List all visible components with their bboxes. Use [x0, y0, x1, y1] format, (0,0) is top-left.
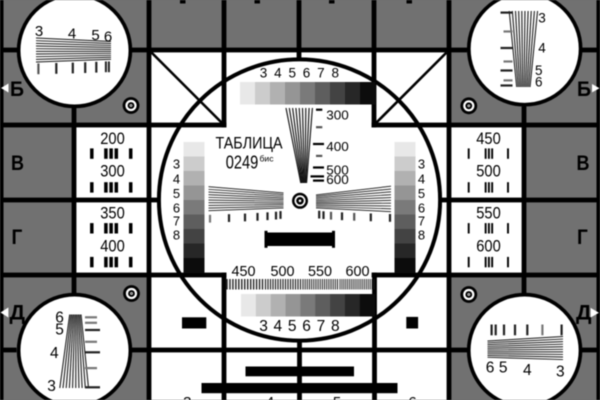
svg-text:ТАБЛИЦА: ТАБЛИЦА — [216, 134, 284, 153]
svg-text:4: 4 — [274, 66, 282, 81]
svg-text:5: 5 — [55, 321, 64, 338]
svg-text:5: 5 — [418, 186, 425, 201]
svg-text:Б: Б — [10, 77, 24, 101]
svg-text:7: 7 — [317, 66, 325, 81]
svg-text:3: 3 — [173, 157, 180, 172]
svg-text:450: 450 — [232, 264, 256, 280]
svg-text:550: 550 — [476, 204, 501, 223]
svg-text:500: 500 — [271, 264, 295, 280]
svg-text:3: 3 — [418, 157, 425, 172]
svg-text:3: 3 — [259, 318, 268, 335]
svg-text:3: 3 — [35, 23, 43, 40]
svg-text:4: 4 — [173, 172, 180, 187]
svg-text:5: 5 — [288, 318, 297, 335]
svg-text:бис: бис — [260, 153, 275, 163]
svg-text:Б: Б — [577, 77, 591, 101]
svg-text:4: 4 — [266, 394, 274, 400]
svg-text:В: В — [11, 151, 24, 175]
svg-text:300: 300 — [326, 108, 349, 122]
svg-text:6: 6 — [486, 360, 495, 377]
svg-text:В: В — [577, 151, 590, 175]
svg-text:6: 6 — [535, 74, 543, 89]
svg-text:300: 300 — [100, 162, 125, 181]
svg-text:Г: Г — [12, 225, 23, 249]
svg-text:5: 5 — [91, 27, 99, 44]
svg-text:6: 6 — [302, 318, 311, 335]
svg-text:8: 8 — [331, 318, 340, 335]
svg-text:3: 3 — [538, 11, 546, 26]
svg-text:6: 6 — [104, 28, 112, 45]
svg-text:550: 550 — [308, 264, 332, 280]
svg-text:8: 8 — [418, 227, 425, 242]
svg-text:4: 4 — [523, 362, 532, 379]
svg-text:6: 6 — [303, 66, 311, 81]
svg-text:6: 6 — [408, 394, 416, 400]
svg-text:3: 3 — [183, 394, 191, 400]
svg-text:4: 4 — [538, 41, 546, 56]
svg-text:7: 7 — [317, 318, 326, 335]
svg-text:600: 600 — [476, 236, 501, 255]
svg-text:Г: Г — [577, 225, 588, 249]
svg-text:350: 350 — [100, 204, 125, 223]
svg-text:600: 600 — [346, 264, 370, 280]
svg-text:4: 4 — [50, 345, 59, 362]
svg-text:500: 500 — [476, 162, 501, 181]
svg-text:0249: 0249 — [226, 151, 259, 172]
svg-text:8: 8 — [331, 66, 339, 81]
svg-text:Д: Д — [10, 301, 26, 325]
svg-text:400: 400 — [100, 236, 125, 255]
svg-text:5: 5 — [499, 360, 508, 377]
svg-text:5: 5 — [173, 186, 180, 201]
svg-text:5: 5 — [333, 394, 341, 400]
svg-text:450: 450 — [476, 129, 501, 148]
svg-text:5: 5 — [288, 66, 296, 81]
svg-text:200: 200 — [100, 129, 125, 148]
svg-text:400: 400 — [326, 140, 349, 154]
svg-text:3: 3 — [556, 364, 565, 381]
svg-text:8: 8 — [173, 227, 180, 242]
svg-text:4: 4 — [68, 26, 76, 43]
svg-text:4: 4 — [274, 318, 283, 335]
svg-text:3: 3 — [260, 66, 268, 81]
svg-text:4: 4 — [418, 172, 425, 187]
svg-text:600: 600 — [326, 173, 349, 187]
svg-text:3: 3 — [47, 378, 56, 395]
svg-text:Д: Д — [576, 301, 592, 325]
